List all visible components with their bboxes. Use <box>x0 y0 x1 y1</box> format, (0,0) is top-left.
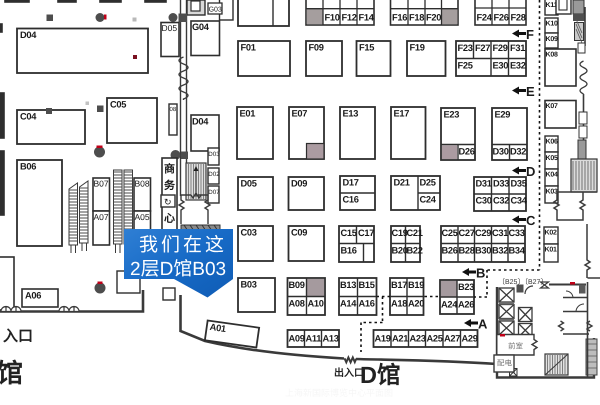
svg-text:D03: D03 <box>208 151 220 158</box>
svg-text:D32: D32 <box>510 147 526 157</box>
svg-text:A23: A23 <box>410 334 426 344</box>
svg-text:B30: B30 <box>475 246 491 256</box>
svg-text:B23: B23 <box>458 282 474 292</box>
svg-text:B20: B20 <box>392 246 408 256</box>
svg-text:D25: D25 <box>420 178 436 188</box>
svg-text:D02: D02 <box>208 171 220 178</box>
svg-text:B17: B17 <box>391 280 407 290</box>
svg-text:C15: C15 <box>341 228 357 238</box>
svg-text:↻: ↻ <box>164 197 172 207</box>
svg-text:F24: F24 <box>477 13 493 23</box>
svg-text:C21: C21 <box>407 228 423 238</box>
svg-text:D04: D04 <box>20 30 37 40</box>
svg-text:A26: A26 <box>458 300 474 310</box>
svg-text:2层D馆B03: 2层D馆B03 <box>130 258 226 280</box>
svg-text:上海新国际博览中心平面图: 上海新国际博览中心平面图 <box>285 388 393 398</box>
svg-text:A07: A07 <box>94 212 109 222</box>
svg-text:D: D <box>526 164 535 179</box>
svg-text:F20: F20 <box>426 13 441 23</box>
svg-text:B15: B15 <box>359 280 375 290</box>
svg-text:K06: K06 <box>546 139 559 146</box>
svg-text:A21: A21 <box>392 334 408 344</box>
svg-text:E13: E13 <box>343 109 359 119</box>
svg-text:E32: E32 <box>510 61 526 71</box>
svg-text:F15: F15 <box>359 43 374 53</box>
svg-text:K09: K09 <box>546 36 559 43</box>
svg-text:G03: G03 <box>209 7 222 14</box>
svg-text:E30: E30 <box>493 61 509 71</box>
svg-text:馆: 馆 <box>0 358 23 388</box>
svg-text:C: C <box>526 213 536 228</box>
svg-text:A: A <box>478 317 488 332</box>
svg-text:F23: F23 <box>458 43 473 53</box>
svg-text:08: 08 <box>170 106 177 113</box>
svg-text:F25: F25 <box>458 61 473 71</box>
svg-text:K10: K10 <box>546 21 559 28</box>
svg-text:配电: 配电 <box>497 359 512 368</box>
svg-text:C19: C19 <box>392 228 408 238</box>
svg-text:A09: A09 <box>289 334 305 344</box>
svg-text:F: F <box>526 27 534 42</box>
svg-text:D05: D05 <box>241 179 257 189</box>
svg-text:入口: 入口 <box>3 328 33 345</box>
svg-text:F09: F09 <box>309 43 324 53</box>
svg-text:F27: F27 <box>475 43 490 53</box>
svg-text:C33: C33 <box>509 228 525 238</box>
svg-text:A10: A10 <box>308 299 324 309</box>
svg-text:B09: B09 <box>289 280 305 290</box>
svg-text:E17: E17 <box>394 109 410 119</box>
svg-text:B22: B22 <box>407 246 423 256</box>
svg-text:A16: A16 <box>359 299 375 309</box>
svg-text:B06: B06 <box>20 162 36 172</box>
svg-text:B34: B34 <box>509 246 526 256</box>
svg-text:A29: A29 <box>462 334 478 344</box>
svg-text:G04: G04 <box>192 22 210 32</box>
svg-text:C32: C32 <box>493 196 509 206</box>
svg-text:A06: A06 <box>25 291 41 301</box>
svg-text:B19: B19 <box>408 280 424 290</box>
svg-text:F19: F19 <box>410 43 425 53</box>
svg-text:A27: A27 <box>444 334 460 344</box>
svg-text:A19: A19 <box>375 334 391 344</box>
svg-text:E: E <box>526 84 535 99</box>
svg-text:D17: D17 <box>343 178 359 188</box>
svg-text:B32: B32 <box>492 246 508 256</box>
svg-text:C09: C09 <box>291 228 307 238</box>
svg-text:E01: E01 <box>240 109 256 119</box>
svg-text:C30: C30 <box>476 196 492 206</box>
svg-text:E23: E23 <box>444 110 460 120</box>
svg-text:A14: A14 <box>340 299 357 309</box>
svg-text:A24: A24 <box>441 300 458 310</box>
svg-text:务: 务 <box>164 179 176 192</box>
svg-text:F14: F14 <box>359 13 375 23</box>
svg-text:D05: D05 <box>162 23 178 33</box>
svg-text:商: 商 <box>164 163 175 176</box>
svg-text:C05: C05 <box>110 100 126 110</box>
svg-text:B13: B13 <box>340 280 356 290</box>
svg-text:F28: F28 <box>511 13 526 23</box>
svg-text:A08: A08 <box>289 299 305 309</box>
svg-text:B26: B26 <box>442 246 458 256</box>
svg-text:D30: D30 <box>493 147 509 157</box>
svg-text:D04: D04 <box>192 117 209 127</box>
svg-text:A25: A25 <box>427 334 443 344</box>
svg-text:C24: C24 <box>420 195 437 205</box>
svg-text:F16: F16 <box>392 13 407 23</box>
svg-text:C17: C17 <box>358 228 374 238</box>
svg-text:心: 心 <box>164 212 175 225</box>
svg-text:E29: E29 <box>495 110 511 120</box>
svg-text:B: B <box>476 266 485 281</box>
svg-text:A20: A20 <box>408 299 424 309</box>
svg-text:E07: E07 <box>292 109 308 119</box>
svg-text:F12: F12 <box>342 13 357 23</box>
svg-text:D35: D35 <box>511 179 527 189</box>
svg-text:C25: C25 <box>442 228 458 238</box>
svg-text:F10: F10 <box>325 13 340 23</box>
svg-text:F01: F01 <box>241 43 256 53</box>
svg-text:B16: B16 <box>341 246 357 256</box>
svg-text:D31: D31 <box>476 179 492 189</box>
svg-text:A11: A11 <box>306 334 322 344</box>
svg-text:B07: B07 <box>94 179 109 189</box>
svg-text:D33: D33 <box>493 179 509 189</box>
svg-text:D07: D07 <box>208 189 220 196</box>
svg-text:K01: K01 <box>545 247 558 254</box>
svg-text:A05: A05 <box>135 212 150 222</box>
svg-text:C34: C34 <box>511 196 528 206</box>
svg-text:C16: C16 <box>343 195 359 205</box>
svg-text:B08: B08 <box>135 179 150 189</box>
svg-text:D26: D26 <box>459 147 475 157</box>
svg-text:F18: F18 <box>409 13 424 23</box>
svg-text:F31: F31 <box>510 43 525 53</box>
svg-text:B28: B28 <box>459 246 475 256</box>
svg-text:我们在这: 我们在这 <box>139 234 227 256</box>
svg-text:D21: D21 <box>394 178 410 188</box>
svg-text:K04: K04 <box>546 172 559 179</box>
svg-text:C03: C03 <box>241 228 257 238</box>
svg-text:C31: C31 <box>492 228 508 238</box>
svg-text:C04: C04 <box>20 112 37 122</box>
svg-text:K03: K03 <box>546 189 559 196</box>
svg-text:D09: D09 <box>291 179 307 189</box>
svg-text:K02: K02 <box>545 230 558 237</box>
svg-text:K08: K08 <box>546 52 559 59</box>
svg-text:F26: F26 <box>494 13 509 23</box>
svg-text:A13: A13 <box>323 334 339 344</box>
svg-text:F29: F29 <box>493 43 508 53</box>
svg-text:B03: B03 <box>241 280 257 290</box>
svg-text:D馆: D馆 <box>360 362 400 388</box>
svg-text:C27: C27 <box>459 228 475 238</box>
svg-text:C29: C29 <box>475 228 491 238</box>
svg-text:A18: A18 <box>391 299 407 309</box>
svg-text:K07: K07 <box>546 103 559 110</box>
svg-text:K05: K05 <box>546 155 559 162</box>
svg-text:前室: 前室 <box>508 342 523 351</box>
